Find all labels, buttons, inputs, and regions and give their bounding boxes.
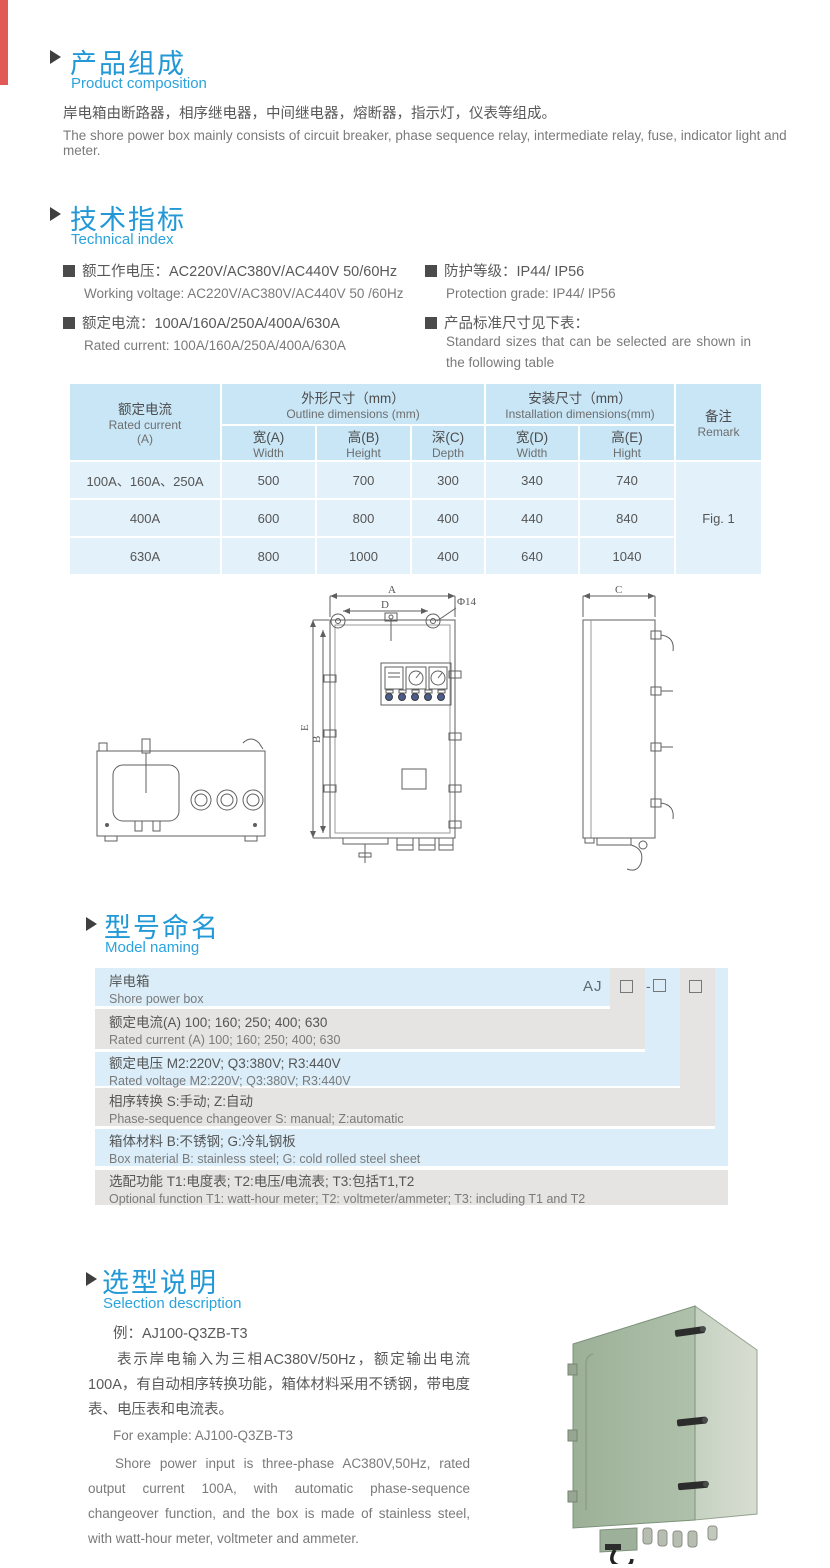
table-header-remark: 备注 Remark [676, 384, 761, 460]
spec-standard-size-zh: 产品标准尺寸见下表： [425, 312, 589, 333]
table-cell: 840 [580, 500, 674, 536]
spec-working-voltage-zh: 额工作电压：AC220V/AC380V/AC440V 50/60Hz [63, 260, 397, 281]
table-cell: 740 [580, 462, 674, 498]
spec-working-voltage-en: Working voltage: AC220V/AC380V/AC440V 50… [84, 286, 403, 301]
section-bullet-icon [86, 1272, 97, 1286]
table-header-installation: 安装尺寸（mm） Installation dimensions(mm) [486, 384, 674, 424]
table-cell: 100A、160A、250A [70, 462, 220, 498]
code-box-2: - [646, 977, 666, 995]
svg-text:Φ14: Φ14 [457, 596, 477, 608]
table-cell: 300 [412, 462, 484, 498]
spec-rated-current-en: Rated current: 100A/160A/250A/400A/630A [84, 338, 346, 353]
bottom-hook [612, 1550, 632, 1564]
table-cell: 600 [222, 500, 315, 536]
model-code-prefix: AJ [583, 978, 603, 995]
table-cell: 640 [486, 538, 578, 574]
spec-standard-size-en: Standard sizes that can be selected are … [446, 332, 751, 374]
table-cell: 500 [222, 462, 315, 498]
table-cell: 800 [317, 500, 410, 536]
cable-glands [600, 1526, 717, 1564]
spec-protection-zh: 防护等级：IP44/ IP56 [425, 260, 584, 281]
table-cell: 400 [412, 500, 484, 536]
model-row-box-material: 箱体材料 B:不锈钢; G:冷轧钢板Box material B: stainl… [95, 1129, 728, 1166]
product-photo [545, 1292, 800, 1564]
table-header-rated-current: 额定电流 Rated current (A) [70, 384, 220, 460]
table-cell: 340 [486, 462, 578, 498]
table-cell: 440 [486, 500, 578, 536]
bullet-square-icon [425, 317, 437, 329]
side-view-drawing: C [583, 584, 673, 870]
composition-title-en: Product composition [71, 75, 207, 92]
code-box-3 [689, 980, 702, 993]
meter-panel-drawing [381, 663, 451, 705]
table-cell: 700 [317, 462, 410, 498]
front-view-drawing: A D Φ14 E B [299, 584, 477, 863]
code-box-1 [620, 980, 633, 993]
technical-title-en: Technical index [71, 231, 174, 248]
bullet-square-icon [63, 265, 75, 277]
bottom-view-drawing [97, 739, 265, 841]
table-subheader-width-a: 宽(A)Width [222, 426, 315, 460]
svg-text:E: E [299, 724, 311, 731]
outline-drawing: A D Φ14 E B [85, 583, 765, 888]
table-subheader-hight-e: 高(E)Hight [580, 426, 674, 460]
table-subheader-width-d: 宽(D)Width [486, 426, 578, 460]
table-cell: 1040 [580, 538, 674, 574]
section-bullet-icon [86, 917, 97, 931]
catalog-page: 产品组成 Product composition 岸电箱由断路器，相序继电器，中… [0, 0, 830, 1568]
table-cell: 400 [412, 538, 484, 574]
selection-title-en: Selection description [103, 1295, 241, 1312]
model-naming-diagram: 岸电箱Shore power box 额定电流(A) 100; 160; 250… [95, 968, 728, 1206]
table-row: 400A 600 800 400 440 840 [70, 500, 761, 536]
composition-body-en: The shore power box mainly consists of c… [63, 128, 803, 158]
svg-text:B: B [311, 736, 323, 743]
page-edge-red-tab [0, 0, 8, 85]
table-cell: 800 [222, 538, 315, 574]
section-bullet-icon [50, 50, 61, 64]
table-cell: 400A [70, 500, 220, 536]
section-bullet-icon [50, 207, 61, 221]
model-row-optional-function: 选配功能 T1:电度表; T2:电压/电流表; T3:包括T1,T2Option… [95, 1170, 728, 1205]
dimension-table: 额定电流 Rated current (A) 外形尺寸（mm） Outline … [68, 382, 763, 576]
svg-text:D: D [381, 599, 389, 611]
table-cell: 1000 [317, 538, 410, 574]
bullet-square-icon [63, 317, 75, 329]
spec-rated-current-zh: 额定电流：100A/160A/250A/400A/630A [63, 312, 340, 333]
spec-protection-en: Protection grade: IP44/ IP56 [446, 286, 616, 301]
table-row: 100A、160A、250A 500 700 300 340 740 Fig. … [70, 462, 761, 498]
selection-example-zh: 例：AJ100-Q3ZB-T3 [113, 1322, 248, 1343]
svg-text:C: C [615, 584, 622, 596]
table-header-outline: 外形尺寸（mm） Outline dimensions (mm) [222, 384, 484, 424]
bullet-square-icon [425, 265, 437, 277]
model-row-phase-sequence: 相序转换 S:手动; Z:自动Phase-sequence changeover… [95, 1088, 715, 1126]
model-row-rated-voltage: 额定电压 M2:220V; Q3:380V; R3:440VRated volt… [95, 1052, 680, 1086]
model-row-rated-current: 额定电流(A) 100; 160; 250; 400; 630Rated cur… [95, 1009, 645, 1049]
selection-example-en: For example: AJ100-Q3ZB-T3 [113, 1428, 293, 1443]
table-subheader-depth-c: 深(C)Depth [412, 426, 484, 460]
svg-text:A: A [388, 584, 396, 596]
table-cell-remark: Fig. 1 [676, 462, 761, 574]
table-subheader-height-b: 高(B)Height [317, 426, 410, 460]
selection-paragraph-en: Shore power input is three-phase AC380V,… [88, 1452, 470, 1552]
box-front-face [573, 1306, 695, 1528]
table-cell: 630A [70, 538, 220, 574]
composition-body-zh: 岸电箱由断路器，相序继电器，中间继电器，熔断器，指示灯，仪表等组成。 [63, 102, 783, 123]
selection-paragraph-zh: 表示岸电输入为三相AC380V/50Hz，额定输出电流100A，有自动相序转换功… [88, 1348, 470, 1423]
model-row-shore-power-box: 岸电箱Shore power box [95, 968, 610, 1006]
table-row: 630A 800 1000 400 640 1040 [70, 538, 761, 574]
model-naming-title-en: Model naming [105, 939, 199, 956]
